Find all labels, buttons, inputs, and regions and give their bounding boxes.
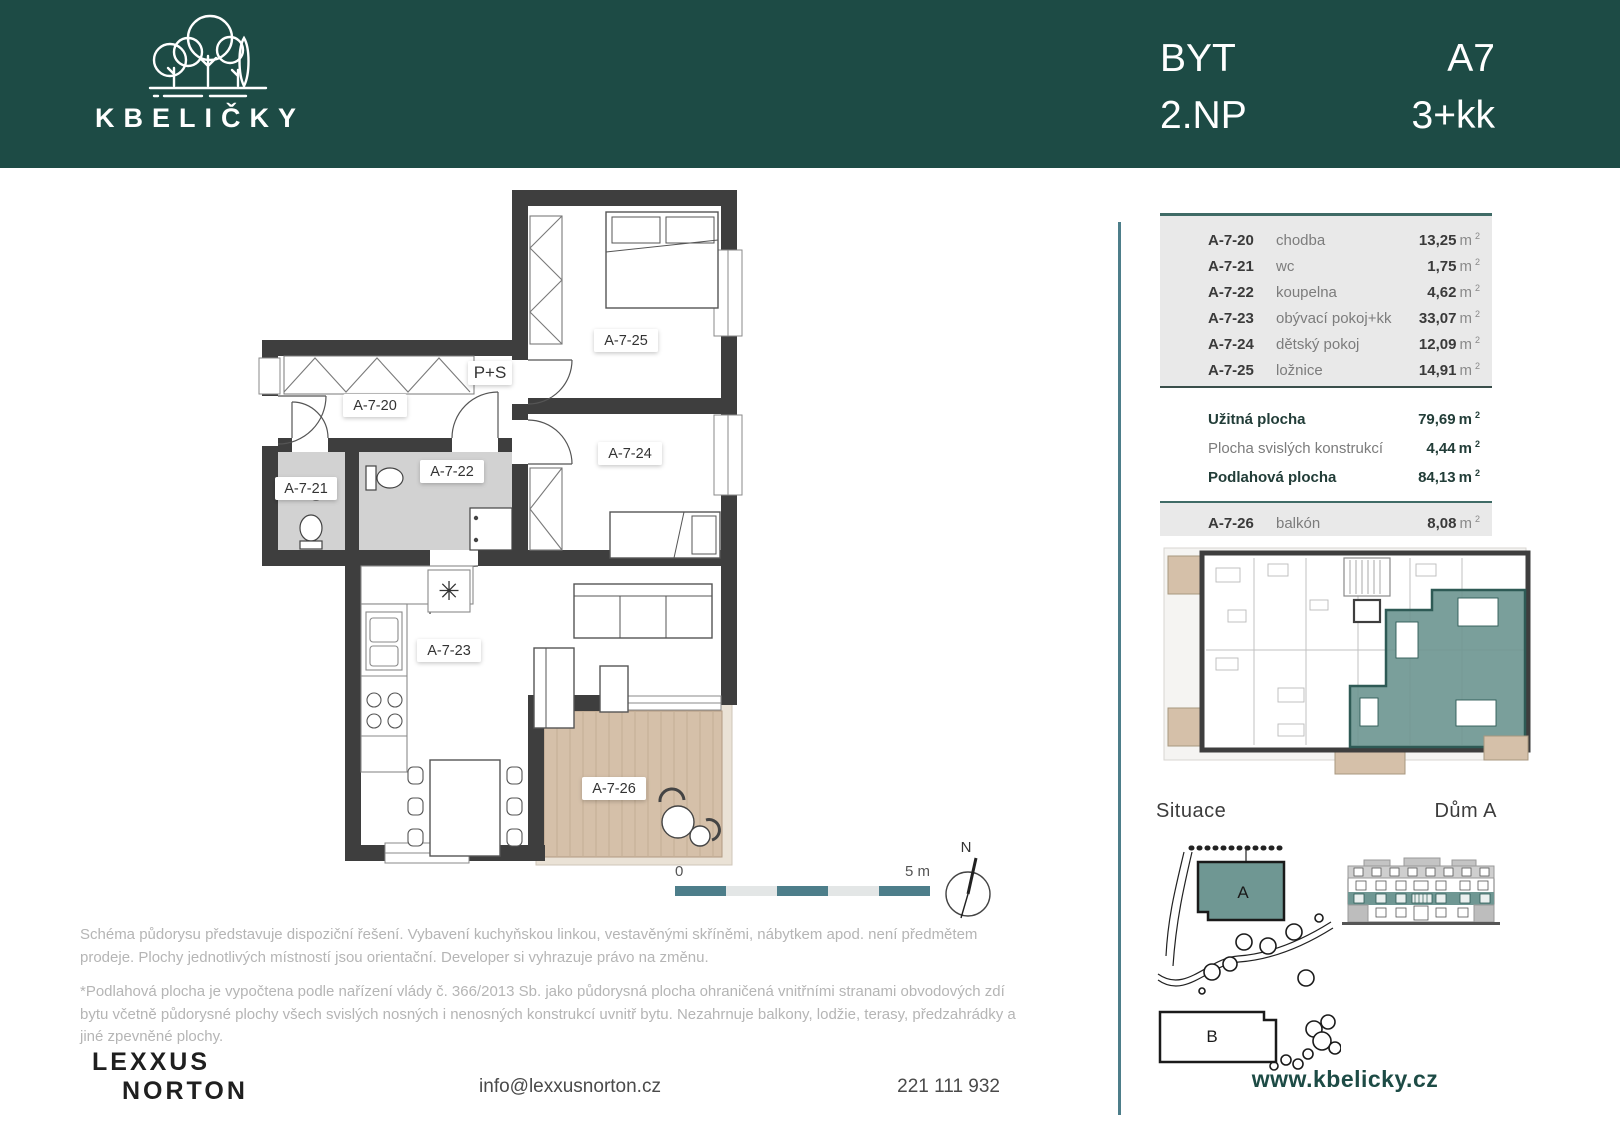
- label-living: A-7-23: [427, 643, 471, 659]
- label-wardrobe: P+S: [474, 363, 507, 382]
- disclaimer-paragraph-1: Schéma půdorysu představuje dispoziční ř…: [80, 924, 985, 969]
- label-kidsroom: A-7-24: [608, 446, 652, 462]
- label-bedroom: A-7-25: [604, 333, 648, 349]
- bed-double: [606, 212, 718, 308]
- unit-id-block: A7 3+kk: [1370, 30, 1495, 144]
- header-band: KBELIČKY BYT 2.NP A7 3+kk: [0, 0, 1620, 168]
- label-wc: A-7-21: [284, 481, 328, 497]
- overview-balcony-a7: [1484, 736, 1528, 760]
- room-area-table: A-7-20 chodba 13,25 m 2 A-7-21 wc 1,75 m…: [1160, 213, 1492, 536]
- contact-phone[interactable]: 221 111 932: [855, 1076, 1000, 1098]
- summary-row-constructions: Plocha svislých konstrukcí 4,44 m 2: [1208, 430, 1480, 459]
- floor-overview-plan: [1158, 538, 1533, 788]
- disclaimer-paragraph-2: *Podlahová plocha je vypočtena podle nař…: [80, 981, 1020, 1049]
- overview-balcony: [1335, 750, 1405, 774]
- bedroom-wardrobes: [530, 216, 562, 550]
- label-hall: A-7-20: [353, 398, 397, 414]
- scale-bar: 0 5 m: [675, 863, 930, 896]
- table-row: A-7-20 chodba 13,25 m 2: [1208, 223, 1480, 249]
- balcony-row: A-7-26 balkón 8,08 m 2: [1160, 501, 1492, 536]
- situace-heading: Situace: [1156, 800, 1226, 823]
- vertical-divider: [1118, 222, 1121, 1115]
- scale-start-label: 0: [675, 863, 683, 880]
- label-balcony: A-7-26: [592, 781, 636, 797]
- website-link[interactable]: www.kbelicky.cz: [1195, 1066, 1495, 1093]
- brand-line-1: LEXXUS: [92, 1048, 248, 1077]
- bed-single: [610, 512, 720, 558]
- floor-label: 2.NP: [1160, 87, 1247, 144]
- summary-row-floor-area: Podlahová plocha 84,13 m 2: [1208, 459, 1480, 488]
- scale-end-label: 5 m: [905, 863, 930, 880]
- unit-id-label: A7: [1370, 30, 1495, 87]
- hall-wardrobe: [284, 356, 474, 394]
- building-b-footprint: [1160, 1012, 1276, 1062]
- unit-floor-block: BYT 2.NP: [1160, 30, 1247, 144]
- lexxus-norton-logo: LEXXUS NORTON: [92, 1048, 248, 1106]
- area-summary: Užitná plocha 79,69 m 2 Plocha svislých …: [1160, 386, 1492, 501]
- contact-email[interactable]: info@lexxusnorton.cz: [420, 1076, 720, 1098]
- layout-label: 3+kk: [1370, 87, 1495, 144]
- room-rows: A-7-20 chodba 13,25 m 2 A-7-21 wc 1,75 m…: [1160, 213, 1492, 386]
- floorplan-document: KBELIČKY BYT 2.NP A7 3+kk: [0, 0, 1620, 1146]
- building-a-label: A: [1237, 883, 1249, 902]
- dining-set: [408, 760, 522, 856]
- kbelicky-trees-logo-icon: [138, 8, 278, 104]
- north-label: N: [961, 839, 972, 856]
- apartment-floorplan: ✳: [180, 180, 1000, 920]
- brand-line-2: NORTON: [92, 1077, 248, 1106]
- logo-wordmark: KBELIČKY: [80, 103, 320, 134]
- dum-a-heading: Dům A: [1375, 800, 1497, 823]
- north-arrow-icon: N: [946, 839, 990, 918]
- site-map: A B: [1146, 826, 1341, 1071]
- building-b-label: B: [1206, 1027, 1217, 1046]
- summary-row-usable: Užitná plocha 79,69 m 2: [1208, 401, 1480, 430]
- vent-symbol: ✳: [438, 576, 460, 606]
- building-elevation: [1336, 844, 1506, 939]
- label-bathroom: A-7-22: [430, 464, 474, 480]
- unit-type-label: BYT: [1160, 30, 1247, 87]
